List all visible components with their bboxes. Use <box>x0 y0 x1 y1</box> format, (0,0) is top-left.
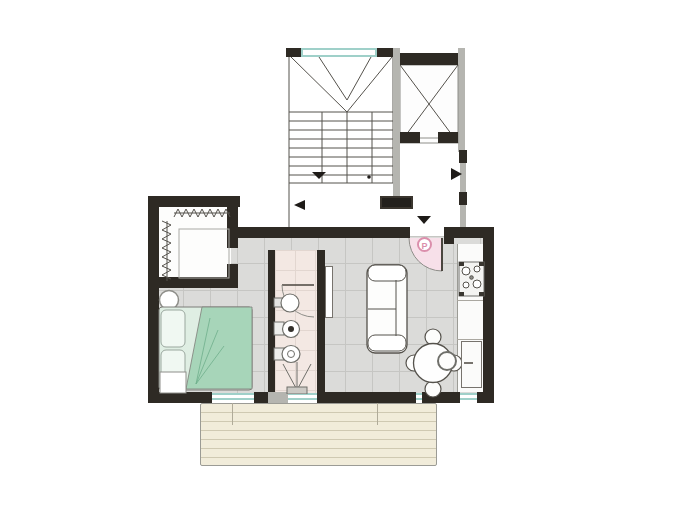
entrance-marker: P <box>417 237 432 252</box>
sofa <box>366 264 408 354</box>
stove-icon <box>458 261 485 297</box>
terrace-deck <box>200 403 437 466</box>
wall-bottom <box>477 392 494 403</box>
window-glass <box>212 393 254 400</box>
arrow-right-icon <box>451 168 462 180</box>
arrow-down-icon <box>417 216 431 224</box>
corridor-wall <box>460 152 466 228</box>
cabinet-handle <box>464 362 473 364</box>
elevator-door-jamb <box>438 132 458 143</box>
wall-segment <box>393 48 400 197</box>
bedroom-furniture <box>156 288 268 394</box>
shower-icon <box>283 362 311 394</box>
elevator-door-jamb <box>400 132 420 143</box>
kitchen-cabinet <box>461 341 482 388</box>
sofa-armrest <box>368 335 406 351</box>
wall-bottom <box>317 392 416 403</box>
wall-top-main <box>227 227 410 238</box>
wall-post <box>376 48 393 57</box>
closet-wardrobe <box>156 205 234 283</box>
wall-right <box>483 230 494 403</box>
wall-segment <box>459 192 467 205</box>
bathroom-fixtures <box>268 250 326 394</box>
floor-plan-canvas: P <box>0 0 700 525</box>
elevator-shaft <box>392 46 468 152</box>
toilet-icon <box>274 321 300 338</box>
kitchen-sink-icon <box>437 351 457 371</box>
wall-segment <box>459 150 467 163</box>
stairwell-window <box>302 49 376 56</box>
terrace-threshold-right <box>377 403 378 425</box>
counter-divider <box>457 300 483 301</box>
pillow <box>161 310 185 347</box>
window-glass <box>288 393 317 400</box>
bathroom-open-door <box>325 266 333 318</box>
sofa-armrest <box>368 265 406 281</box>
arrow-left-icon <box>294 200 305 210</box>
nightstand <box>160 372 186 393</box>
terrace-threshold-left <box>232 403 233 425</box>
sink-icon <box>274 294 299 312</box>
wall-post <box>286 48 302 57</box>
doormat <box>380 196 413 209</box>
entrance-marker-label: P <box>421 241 427 251</box>
bidet-icon <box>274 346 300 363</box>
stair-start-dot <box>367 175 371 179</box>
wall-segment <box>444 238 454 244</box>
